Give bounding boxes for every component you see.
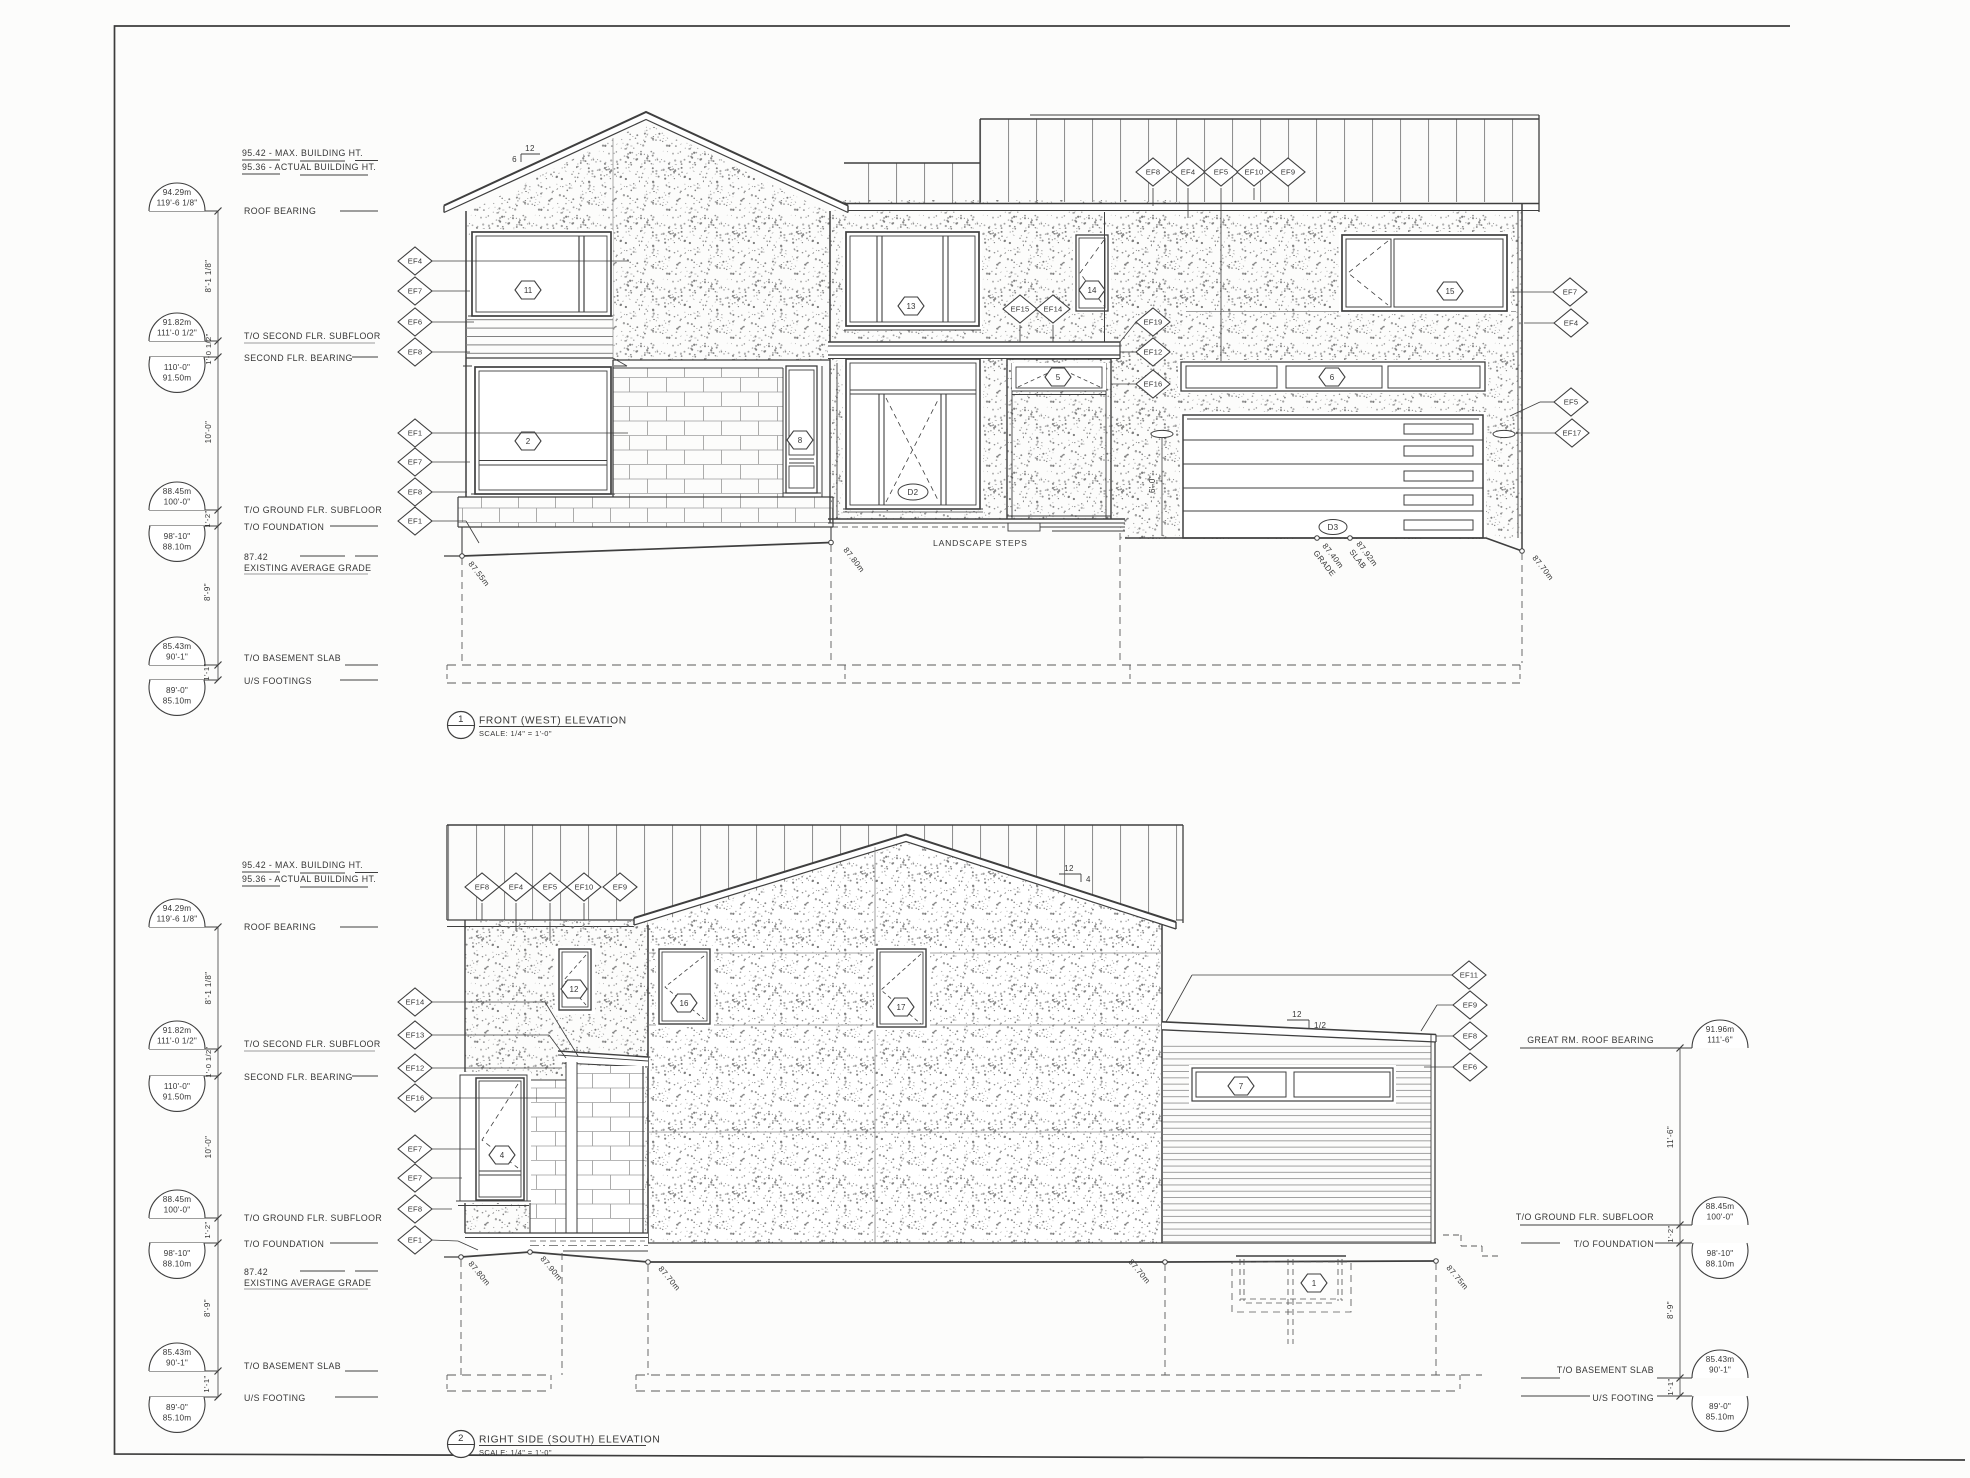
svg-text:T/O BASEMENT SLAB: T/O BASEMENT SLAB	[244, 1361, 341, 1371]
svg-text:119'-6 1/8": 119'-6 1/8"	[157, 199, 198, 208]
svg-text:11: 11	[524, 286, 533, 295]
svg-text:88.45m: 88.45m	[1706, 1202, 1735, 1211]
svg-text:1'-1": 1'-1"	[202, 663, 211, 680]
svg-text:EF14: EF14	[1044, 305, 1063, 314]
svg-text:EF4: EF4	[1181, 168, 1196, 177]
svg-text:91.50m: 91.50m	[163, 374, 192, 383]
svg-text:EF9: EF9	[613, 883, 628, 892]
svg-text:EF7: EF7	[408, 1145, 423, 1154]
svg-text:1'-2": 1'-2"	[203, 510, 212, 527]
svg-text:95.42 - MAX. BUILDING HT.: 95.42 - MAX. BUILDING HT.	[242, 860, 363, 870]
svg-text:11'-6": 11'-6"	[1666, 1126, 1675, 1148]
svg-text:91.50m: 91.50m	[163, 1093, 192, 1102]
svg-text:EF9: EF9	[1281, 168, 1296, 177]
svg-text:89'-0": 89'-0"	[166, 686, 188, 695]
svg-text:1/2: 1/2	[1314, 1021, 1326, 1030]
svg-text:EF6: EF6	[1463, 1063, 1478, 1072]
svg-text:90'-1": 90'-1"	[1709, 1366, 1731, 1375]
svg-text:2: 2	[526, 437, 531, 446]
svg-text:T/O BASEMENT SLAB: T/O BASEMENT SLAB	[1557, 1365, 1654, 1375]
svg-text:88.45m: 88.45m	[163, 487, 192, 496]
svg-text:91.82m: 91.82m	[163, 318, 192, 327]
svg-text:T/O GROUND FLR. SUBFLOOR: T/O GROUND FLR. SUBFLOOR	[244, 1213, 382, 1223]
svg-text:95.36 - ACTUAL BUILDING HT.: 95.36 - ACTUAL BUILDING HT.	[242, 874, 376, 884]
svg-text:1'-0 1/2": 1'-0 1/2"	[204, 333, 213, 364]
svg-text:EF4: EF4	[1564, 319, 1579, 328]
svg-text:EF11: EF11	[1460, 971, 1478, 980]
svg-text:90'-1": 90'-1"	[166, 653, 188, 662]
svg-text:FRONT (WEST) ELEVATION: FRONT (WEST) ELEVATION	[479, 716, 627, 727]
svg-text:1'-0 1/2": 1'-0 1/2"	[204, 1046, 213, 1077]
svg-text:EF7: EF7	[1563, 288, 1578, 297]
svg-text:10'-0": 10'-0"	[204, 421, 213, 444]
svg-text:EF7: EF7	[408, 458, 423, 467]
svg-text:94.29m: 94.29m	[163, 904, 192, 913]
svg-text:85.10m: 85.10m	[1706, 1413, 1735, 1422]
svg-text:EF16: EF16	[1144, 380, 1163, 389]
svg-text:88.10m: 88.10m	[1706, 1260, 1735, 1269]
svg-text:110'-0": 110'-0"	[164, 1082, 190, 1091]
svg-text:T/O SECOND FLR. SUBFLOOR: T/O SECOND FLR. SUBFLOOR	[244, 1039, 381, 1049]
svg-text:EF1: EF1	[408, 1236, 423, 1245]
svg-text:EF8: EF8	[1463, 1032, 1478, 1041]
svg-text:EXISTING AVERAGE GRADE: EXISTING AVERAGE GRADE	[244, 1278, 371, 1288]
svg-text:LANDSCAPE STEPS: LANDSCAPE STEPS	[933, 538, 1028, 548]
svg-text:T/O GROUND FLR. SUBFLOOR: T/O GROUND FLR. SUBFLOOR	[1516, 1212, 1654, 1222]
svg-text:EF9: EF9	[1463, 1001, 1478, 1010]
svg-text:90'-1": 90'-1"	[166, 1359, 188, 1368]
svg-text:17: 17	[897, 1003, 906, 1012]
svg-text:D2: D2	[907, 488, 918, 497]
svg-text:88.45m: 88.45m	[163, 1195, 192, 1204]
svg-text:8: 8	[798, 436, 803, 445]
svg-text:EF10: EF10	[1245, 168, 1264, 177]
svg-text:EF5: EF5	[1214, 168, 1229, 177]
svg-text:T/O BASEMENT SLAB: T/O BASEMENT SLAB	[244, 653, 341, 663]
svg-text:85.10m: 85.10m	[163, 1414, 192, 1423]
svg-text:15: 15	[1446, 287, 1455, 296]
svg-text:EF5: EF5	[543, 883, 558, 892]
svg-text:98'-10": 98'-10"	[164, 532, 191, 541]
svg-text:EF8: EF8	[475, 883, 490, 892]
svg-text:SCALE: 1/4" = 1'-0": SCALE: 1/4" = 1'-0"	[479, 1448, 552, 1457]
svg-text:91.82m: 91.82m	[163, 1026, 192, 1035]
svg-text:RIGHT SIDE (SOUTH) ELEVATION: RIGHT SIDE (SOUTH) ELEVATION	[479, 1435, 660, 1446]
svg-text:119'-6 1/8": 119'-6 1/8"	[157, 915, 198, 924]
svg-text:88.10m: 88.10m	[163, 1260, 192, 1269]
svg-text:T/O FOUNDATION: T/O FOUNDATION	[244, 522, 324, 532]
svg-text:1: 1	[458, 714, 464, 725]
svg-text:8'-1 1/8": 8'-1 1/8"	[204, 972, 213, 1005]
svg-text:100'-0": 100'-0"	[1707, 1213, 1734, 1222]
svg-text:13: 13	[907, 302, 916, 311]
svg-text:EXISTING AVERAGE GRADE: EXISTING AVERAGE GRADE	[244, 563, 371, 573]
svg-text:2: 2	[458, 1433, 464, 1444]
svg-text:U/S FOOTINGS: U/S FOOTINGS	[244, 676, 312, 686]
svg-text:SECOND FLR. BEARING: SECOND FLR. BEARING	[244, 353, 353, 363]
svg-text:4: 4	[1086, 875, 1091, 884]
svg-text:T/O GROUND FLR. SUBFLOOR: T/O GROUND FLR. SUBFLOOR	[244, 505, 382, 515]
svg-text:EF15: EF15	[1011, 305, 1030, 314]
svg-text:EF10: EF10	[575, 883, 594, 892]
svg-text:98'-10": 98'-10"	[164, 1249, 191, 1258]
svg-text:EF8: EF8	[408, 348, 423, 357]
svg-text:94.29m: 94.29m	[163, 188, 192, 197]
svg-text:10'-0": 10'-0"	[204, 1136, 213, 1159]
svg-text:1'-1": 1'-1"	[1666, 1378, 1675, 1395]
svg-text:1: 1	[1312, 1279, 1317, 1288]
svg-text:95.36 - ACTUAL BUILDING HT.: 95.36 - ACTUAL BUILDING HT.	[242, 162, 376, 172]
svg-text:111'-0 1/2": 111'-0 1/2"	[157, 329, 197, 338]
svg-text:85.43m: 85.43m	[163, 1348, 192, 1357]
svg-text:EF1: EF1	[408, 517, 423, 526]
svg-text:5: 5	[1056, 373, 1061, 382]
svg-text:110'-0": 110'-0"	[164, 363, 190, 372]
svg-text:1'-2": 1'-2"	[1666, 1225, 1675, 1242]
svg-text:14: 14	[1088, 286, 1097, 295]
svg-text:8'-9": 8'-9"	[203, 1299, 212, 1317]
svg-text:6: 6	[1330, 373, 1335, 382]
svg-text:EF12: EF12	[1144, 348, 1163, 357]
svg-text:EF5: EF5	[1564, 398, 1579, 407]
svg-text:91.96m: 91.96m	[1706, 1025, 1735, 1034]
svg-text:EF8: EF8	[408, 1205, 423, 1214]
svg-text:6: 6	[512, 155, 517, 164]
svg-text:12: 12	[1064, 864, 1074, 873]
svg-text:1'-1": 1'-1"	[202, 1375, 211, 1392]
svg-text:EF8: EF8	[1146, 168, 1161, 177]
svg-text:EF17: EF17	[1563, 429, 1582, 438]
svg-text:95.42 - MAX. BUILDING HT.: 95.42 - MAX. BUILDING HT.	[242, 148, 363, 158]
svg-text:SCALE: 1/4" = 1'-0": SCALE: 1/4" = 1'-0"	[479, 729, 552, 738]
svg-text:U/S FOOTING: U/S FOOTING	[244, 1393, 306, 1403]
svg-text:ROOF BEARING: ROOF BEARING	[244, 922, 316, 932]
svg-text:EF6: EF6	[408, 318, 423, 327]
svg-text:ROOF BEARING: ROOF BEARING	[244, 206, 316, 216]
svg-text:85.43m: 85.43m	[1706, 1355, 1735, 1364]
svg-text:EF19: EF19	[1144, 318, 1163, 327]
svg-text:EF1: EF1	[408, 429, 423, 438]
svg-text:87.42: 87.42	[244, 552, 268, 562]
svg-text:98'-10": 98'-10"	[1707, 1249, 1734, 1258]
svg-text:EF14: EF14	[406, 998, 425, 1007]
svg-text:87.42: 87.42	[244, 1267, 268, 1277]
svg-text:4: 4	[500, 1151, 505, 1160]
svg-text:16: 16	[680, 999, 689, 1008]
svg-text:111'-0 1/2": 111'-0 1/2"	[157, 1037, 197, 1046]
svg-text:8'-9": 8'-9"	[1666, 1301, 1675, 1319]
svg-text:T/O FOUNDATION: T/O FOUNDATION	[1574, 1239, 1654, 1249]
svg-text:12: 12	[1292, 1010, 1302, 1019]
svg-text:SECOND FLR. BEARING: SECOND FLR. BEARING	[244, 1072, 353, 1082]
svg-text:85.43m: 85.43m	[163, 642, 192, 651]
svg-text:U/S FOOTING: U/S FOOTING	[1592, 1393, 1654, 1403]
svg-text:GREAT RM. ROOF BEARING: GREAT RM. ROOF BEARING	[1527, 1035, 1654, 1045]
svg-text:EF8: EF8	[408, 488, 423, 497]
svg-text:89'-0": 89'-0"	[166, 1403, 188, 1412]
svg-text:EF4: EF4	[408, 257, 423, 266]
svg-text:D3: D3	[1327, 523, 1338, 532]
svg-text:6'-0": 6'-0"	[1148, 475, 1157, 493]
svg-text:100'-0": 100'-0"	[164, 1206, 191, 1215]
svg-text:T/O SECOND FLR. SUBFLOOR: T/O SECOND FLR. SUBFLOOR	[244, 331, 381, 341]
svg-text:EF13: EF13	[406, 1031, 425, 1040]
svg-text:89'-0": 89'-0"	[1709, 1402, 1731, 1411]
svg-text:EF7: EF7	[408, 287, 423, 296]
svg-text:88.10m: 88.10m	[163, 543, 192, 552]
svg-text:111'-6": 111'-6"	[1707, 1036, 1733, 1045]
svg-text:1'-2": 1'-2"	[203, 1221, 212, 1238]
svg-text:EF7: EF7	[408, 1174, 423, 1183]
svg-text:8'-9": 8'-9"	[203, 583, 212, 601]
svg-text:12: 12	[525, 144, 535, 153]
svg-text:85.10m: 85.10m	[163, 697, 192, 706]
svg-text:12: 12	[570, 985, 579, 994]
svg-text:EF16: EF16	[406, 1094, 425, 1103]
svg-text:100'-0": 100'-0"	[164, 498, 191, 507]
svg-text:8'-1 1/8": 8'-1 1/8"	[204, 260, 213, 293]
svg-text:7: 7	[1239, 1082, 1244, 1091]
svg-text:T/O FOUNDATION: T/O FOUNDATION	[244, 1239, 324, 1249]
svg-text:EF12: EF12	[406, 1064, 425, 1073]
svg-text:EF4: EF4	[509, 883, 524, 892]
